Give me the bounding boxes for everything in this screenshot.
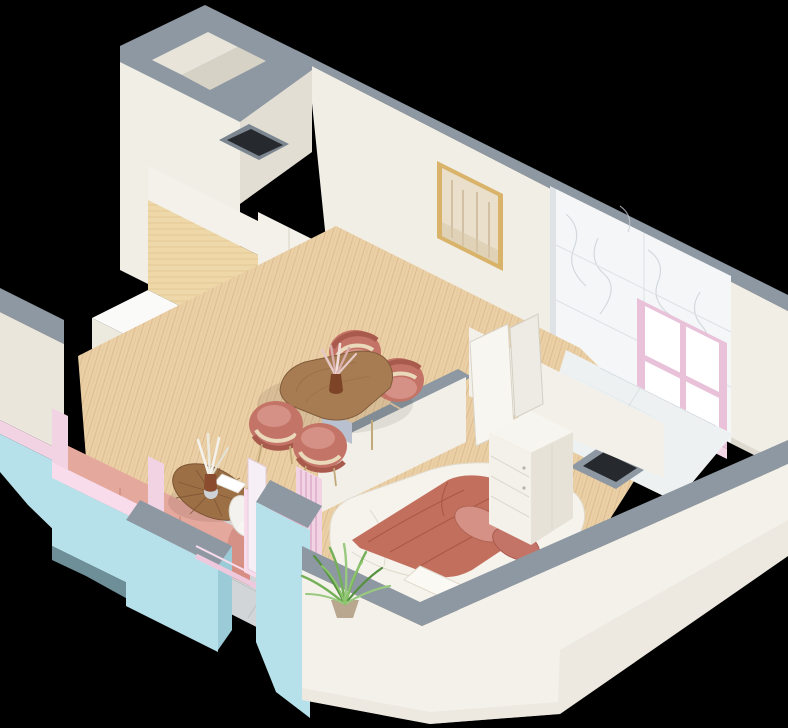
- wardrobe-handle: [522, 486, 525, 489]
- decor-vase: [204, 474, 217, 492]
- open-door: [510, 314, 543, 418]
- wardrobe-handle: [522, 466, 525, 469]
- vase-body: [329, 374, 343, 394]
- apartment-isometric-render: Isometric 3D cutaway render of a one-bed…: [0, 0, 788, 728]
- window-mullion-vertical: [680, 323, 686, 421]
- window-post: [52, 408, 68, 472]
- white-wardrobe: [489, 411, 573, 545]
- render-stage: Isometric 3D cutaway render of a one-bed…: [0, 0, 788, 728]
- marble-panel-edge: [550, 186, 556, 357]
